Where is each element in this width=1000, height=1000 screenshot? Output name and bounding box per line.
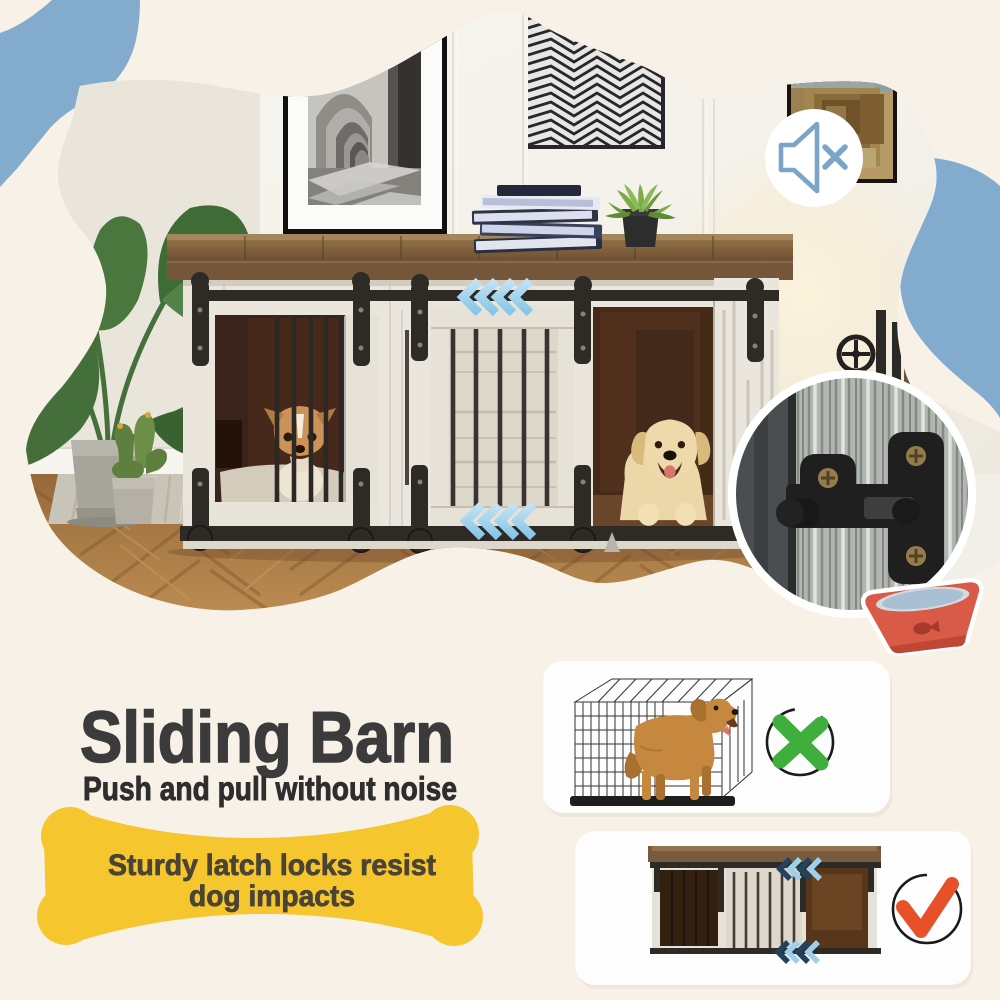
svg-text:Sturdy latch locks resist: Sturdy latch locks resist <box>108 849 436 882</box>
svg-text:Push and pull without noise: Push and pull without noise <box>83 770 457 807</box>
svg-text:Sliding Barn: Sliding Barn <box>80 698 454 778</box>
svg-text:dog impacts: dog impacts <box>189 880 355 913</box>
